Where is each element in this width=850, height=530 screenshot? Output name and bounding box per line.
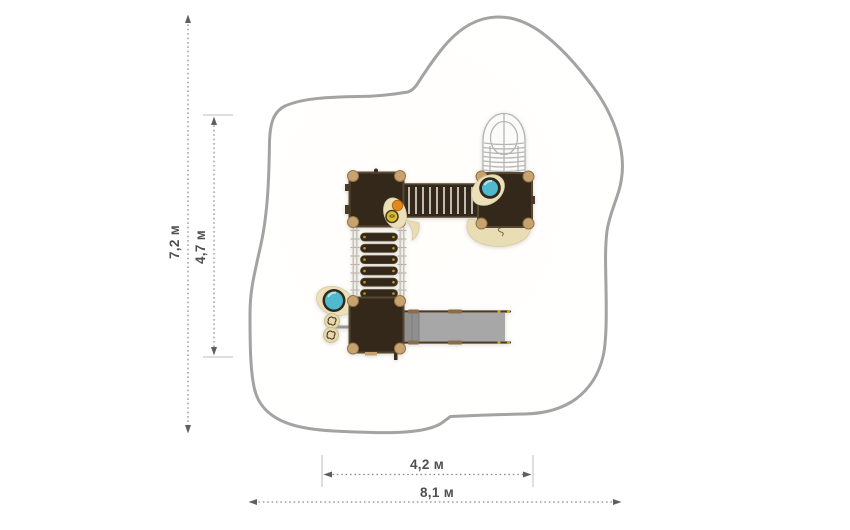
safety-zone-outline: [250, 17, 622, 433]
arrow-right-icon: [523, 472, 532, 478]
dim-total-height-label: 7,2 м: [167, 225, 182, 259]
dim-inner-height: 4,7 м: [193, 115, 233, 357]
arrow-left-icon: [324, 472, 333, 478]
teal-bubble-icon: [325, 292, 343, 310]
dim-inner-width-label: 4,2 м: [410, 457, 444, 472]
arrow-up-icon: [211, 117, 217, 126]
dim-inner-width: 4,2 м: [322, 455, 533, 487]
arrow-up-icon: [185, 15, 191, 24]
dim-total-width-label: 8,1 м: [420, 485, 454, 500]
dimension-drawing-canvas: 7,2 м 4,7 м 4,2 м 8,1 м: [0, 0, 850, 530]
arrow-left-icon: [249, 499, 258, 505]
dim-total-height: 7,2 м: [167, 15, 191, 434]
arrow-right-icon: [613, 499, 622, 505]
teal-bubble-icon: [482, 180, 498, 196]
dim-total-width: 8,1 м: [249, 485, 622, 505]
plan-drawing: 7,2 м 4,7 м 4,2 м 8,1 м: [0, 0, 850, 530]
straight-slide: [404, 310, 510, 345]
platform-top-left: [345, 169, 410, 232]
yellow-wheel-icon: [386, 211, 398, 223]
orange-knob-icon: [392, 200, 402, 210]
arrow-down-icon: [185, 425, 191, 434]
stair-bridge: [403, 184, 479, 217]
dim-inner-height-label: 4,7 м: [193, 230, 208, 264]
arrow-down-icon: [211, 347, 217, 356]
spiral-tube-slide-icon: [483, 114, 525, 176]
